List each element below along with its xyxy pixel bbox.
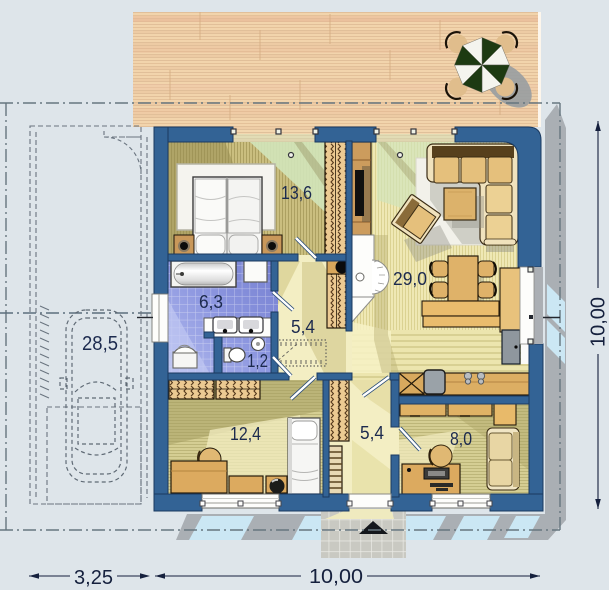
svg-text:12,4: 12,4 <box>230 424 261 444</box>
svg-text:28,5: 28,5 <box>82 333 118 355</box>
svg-text:10,00: 10,00 <box>309 566 363 588</box>
svg-text:10,00: 10,00 <box>588 297 609 347</box>
svg-text:5,4: 5,4 <box>291 317 315 337</box>
svg-text:1,2: 1,2 <box>247 351 268 371</box>
svg-text:29,0: 29,0 <box>393 269 427 289</box>
svg-text:3,25: 3,25 <box>74 567 113 589</box>
svg-text:6,3: 6,3 <box>199 292 223 312</box>
svg-text:13,6: 13,6 <box>281 183 312 203</box>
svg-text:5,4: 5,4 <box>360 423 384 443</box>
svg-text:8,0: 8,0 <box>450 429 472 449</box>
